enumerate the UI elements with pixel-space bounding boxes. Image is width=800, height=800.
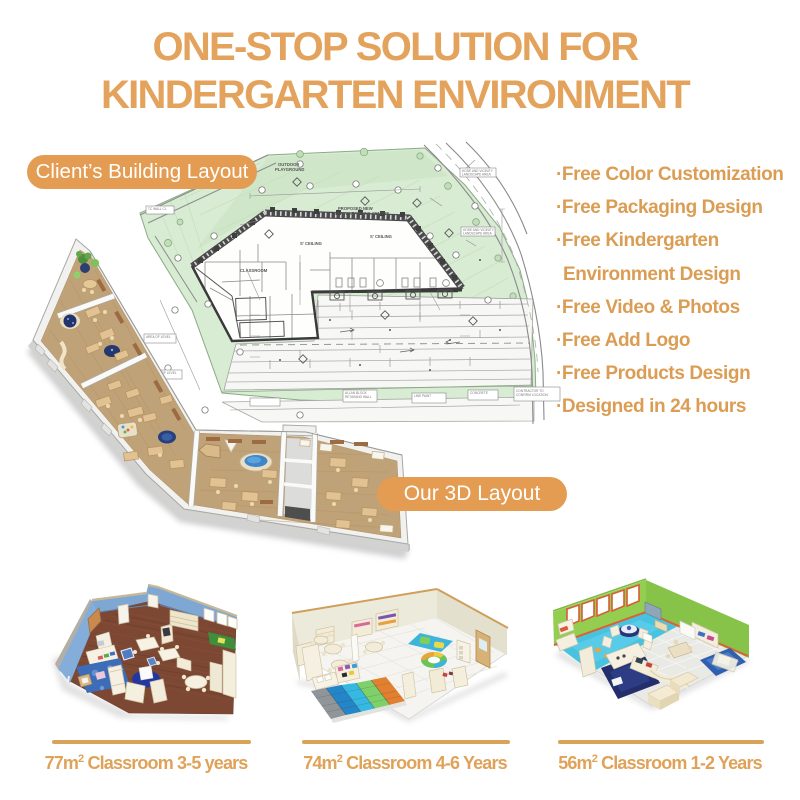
svg-text:LINE PAINT: LINE PAINT: [414, 394, 431, 398]
svg-text:TC WALL CL: TC WALL CL: [148, 207, 167, 211]
svg-text:S' CEILING: S' CEILING: [300, 241, 322, 246]
svg-text:LANDSCAPE AREA: LANDSCAPE AREA: [462, 173, 492, 177]
svg-text:S' CEILING: S' CEILING: [370, 234, 392, 239]
svg-text:RETAINING WALL: RETAINING WALL: [345, 395, 372, 399]
svg-text:CLASSROOM: CLASSROOM: [240, 268, 268, 273]
svg-text:PLAYGROUND: PLAYGROUND: [275, 167, 304, 172]
svg-text:EARLY LEARNING CENTRE: EARLY LEARNING CENTRE: [334, 211, 389, 216]
svg-text:AREA OF LEVEL: AREA OF LEVEL: [146, 335, 171, 339]
svg-text:CONFIRM LOCATION: CONFIRM LOCATION: [516, 393, 549, 397]
svg-text:LANDSCAPE AREA: LANDSCAPE AREA: [463, 232, 493, 236]
svg-text:CONCRETE: CONCRETE: [470, 391, 488, 395]
